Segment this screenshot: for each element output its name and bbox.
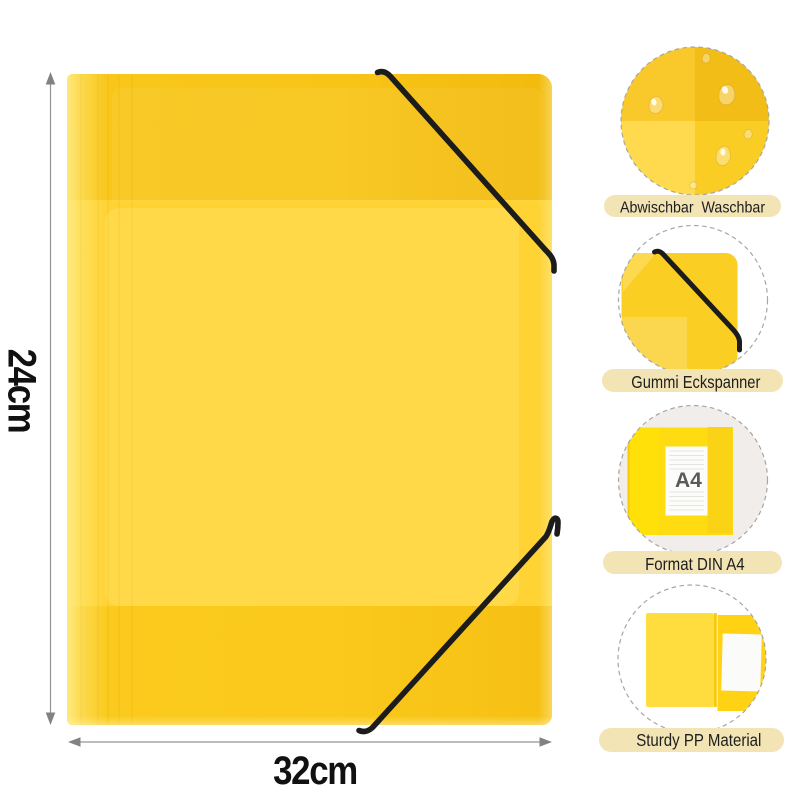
svg-text:A4: A4 <box>675 469 702 492</box>
